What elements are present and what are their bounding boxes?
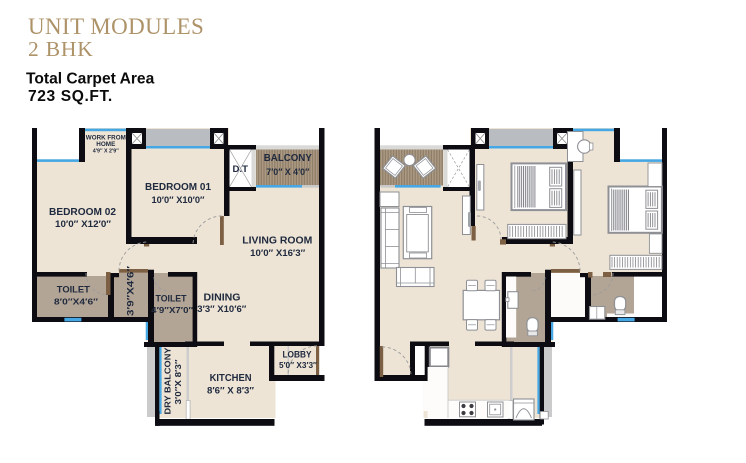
svg-text:5′0″ X3′3″: 5′0″ X3′3″ [279,361,317,370]
svg-text:DRY BALCONY: DRY BALCONY [163,347,173,414]
svg-text:3′9″X4′6″: 3′9″X4′6″ [126,265,136,316]
svg-text:8′0″X4′6″: 8′0″X4′6″ [54,297,98,307]
svg-text:10′0″ X12′0″: 10′0″ X12′0″ [55,219,112,229]
svg-text:UNIT MODULES: UNIT MODULES [28,14,204,39]
svg-text:4′9″ X 2′9″: 4′9″ X 2′9″ [93,148,119,154]
svg-text:10′0″ X10′0″: 10′0″ X10′0″ [152,195,206,205]
svg-text:BEDROOM 01: BEDROOM 01 [145,182,211,193]
svg-text:7′0″ X 4′0″: 7′0″ X 4′0″ [266,167,310,177]
svg-text:4′9″X7′0″: 4′9″X7′0″ [151,305,193,315]
svg-text:3′3″ X10′6″: 3′3″ X10′6″ [197,304,247,314]
svg-text:2 BHK: 2 BHK [28,37,94,61]
svg-text:D.T: D.T [233,164,249,174]
svg-text:KITCHEN: KITCHEN [210,373,252,384]
svg-text:Total Carpet Area: Total Carpet Area [26,71,155,88]
svg-text:8′6″ X 8′3″: 8′6″ X 8′3″ [207,386,255,396]
svg-text:BALCONY: BALCONY [264,153,312,164]
svg-text:TOILET: TOILET [57,285,90,295]
svg-text:LIVING ROOM: LIVING ROOM [242,235,312,246]
svg-text:HOME: HOME [96,142,115,148]
svg-text:LOBBY: LOBBY [283,350,312,360]
svg-text:DINING: DINING [204,292,241,303]
svg-text:WORK FROM: WORK FROM [86,136,126,142]
svg-text:3′0″X 8′3″: 3′0″X 8′3″ [174,359,183,404]
svg-text:723 SQ.FT.: 723 SQ.FT. [28,88,113,105]
svg-text:TOILET: TOILET [156,294,187,304]
svg-text:BEDROOM 02: BEDROOM 02 [49,207,116,218]
svg-text:10′0″ X16′3″: 10′0″ X16′3″ [250,248,306,258]
